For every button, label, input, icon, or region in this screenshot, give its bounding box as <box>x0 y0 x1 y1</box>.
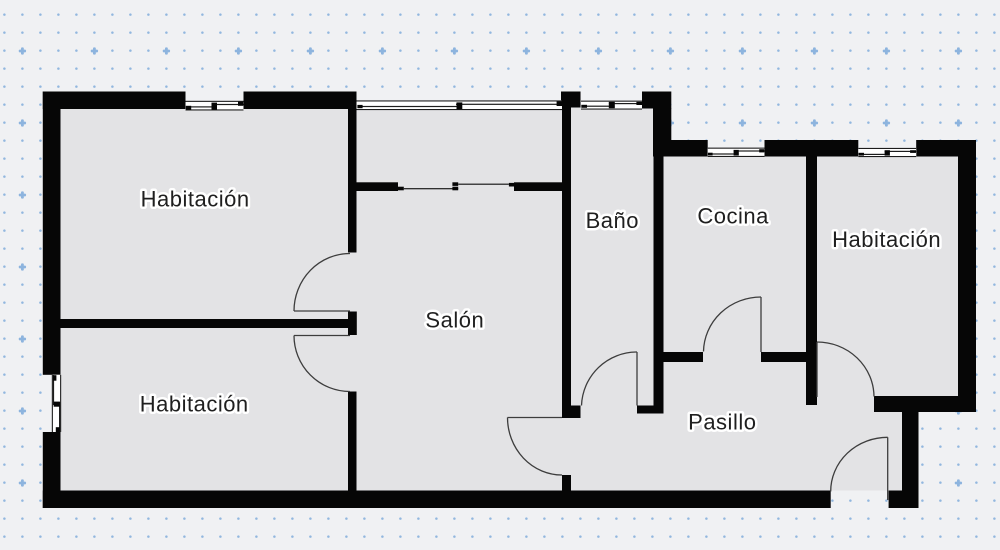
svg-text:Salón: Salón <box>425 308 484 333</box>
svg-text:Cocina: Cocina <box>697 204 769 229</box>
svg-text:Habitación: Habitación <box>141 186 250 211</box>
svg-text:Baño: Baño <box>586 208 639 233</box>
svg-text:Habitación: Habitación <box>140 391 249 416</box>
svg-text:Habitación: Habitación <box>832 227 941 252</box>
svg-text:Pasillo: Pasillo <box>688 410 756 435</box>
